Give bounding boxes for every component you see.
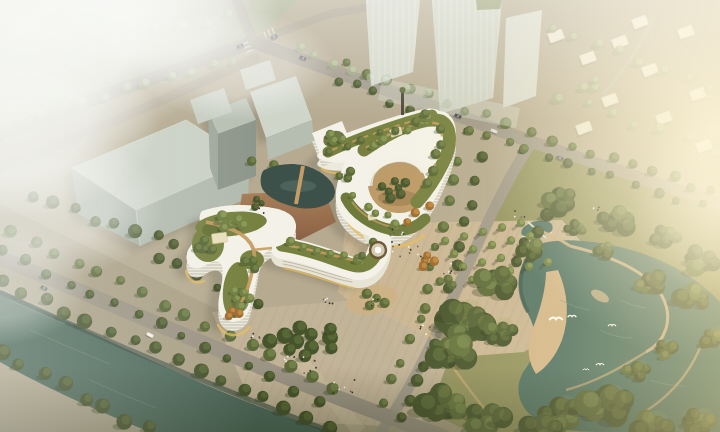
- rendering-canvas: [0, 0, 720, 432]
- architectural-rendering: Aerial architectural rendering Bird's-ey…: [0, 0, 720, 432]
- atmosphere-layer: [0, 0, 720, 432]
- top-haze: [0, 0, 720, 120]
